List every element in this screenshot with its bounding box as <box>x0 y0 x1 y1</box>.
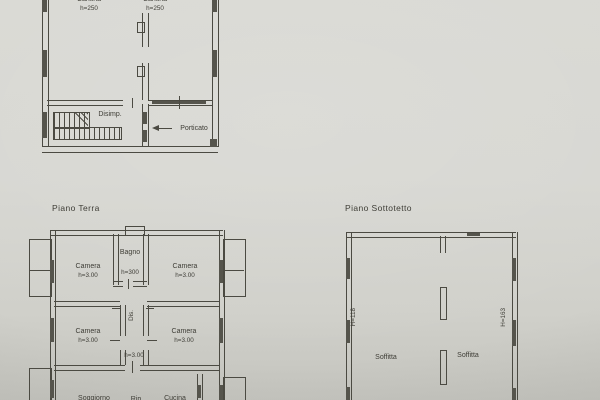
room-label-cantina-right: Cantina h=250 <box>134 0 176 13</box>
door-jamb <box>197 385 201 398</box>
corner-pillar <box>210 139 217 147</box>
window-marker <box>50 260 54 283</box>
window-marker <box>467 233 480 236</box>
door-tick <box>147 340 157 341</box>
window-marker <box>512 320 516 346</box>
room-label-porticato: Porticato <box>176 124 212 133</box>
room-name: Camera <box>68 262 108 271</box>
balcony-tick <box>223 270 244 271</box>
room-label-camera: Camera h=3.00 <box>164 327 204 345</box>
staircase-lower-flight <box>53 127 122 140</box>
room-label-soffitta: Soffitta <box>368 353 404 362</box>
wall-stub <box>440 236 446 253</box>
roof-opening <box>440 287 447 320</box>
room-label-disimp: Disimp. <box>93 110 127 119</box>
door-tick <box>128 279 129 289</box>
room-name: Camera <box>164 327 204 336</box>
room-label-camera: Camera h=3.00 <box>165 262 205 280</box>
wall <box>133 281 147 287</box>
room-label-camera: Camera h=3.00 <box>68 262 108 280</box>
entrance-arrow-line <box>158 128 172 129</box>
balcony <box>29 368 52 400</box>
wall <box>346 232 516 238</box>
window-tick <box>179 96 180 109</box>
chimney-notch <box>125 226 145 236</box>
window-marker <box>512 258 516 281</box>
window-marker <box>50 380 54 398</box>
room-label-soggiorno: Soggiorno <box>72 394 116 400</box>
door-tick <box>112 308 120 309</box>
corridor-height-label: h=3.00 <box>122 351 146 360</box>
balcony-tick <box>29 270 50 271</box>
floor-plan-photo: Cantina h=250 Cantina h=250 Disimp. Port… <box>0 0 600 400</box>
plan-title-piano-terra: Piano Terra <box>52 203 100 213</box>
wall <box>42 146 218 153</box>
balcony <box>29 239 52 297</box>
height-label-left: H=118 <box>350 308 357 326</box>
window-marker <box>212 50 217 77</box>
door-tick <box>132 361 133 373</box>
room-label-cucina: Cucina <box>158 394 192 400</box>
wall <box>54 365 125 371</box>
door-tick <box>110 340 120 341</box>
window-marker <box>219 260 223 283</box>
roof-opening <box>440 350 447 385</box>
room-height: h=3.00 <box>165 271 205 280</box>
wall <box>54 301 120 307</box>
window-marker <box>219 385 223 400</box>
window-marker <box>219 318 223 343</box>
wall <box>120 305 126 336</box>
wall <box>47 100 123 106</box>
window-marker <box>212 0 217 12</box>
room-height: h=3.00 <box>164 336 204 345</box>
wall <box>147 301 219 307</box>
wall <box>113 281 123 287</box>
window-marker <box>512 388 516 400</box>
room-height: h=3.00 <box>68 271 108 280</box>
balcony <box>223 239 246 297</box>
room-label-rip: Rip. <box>130 395 144 400</box>
window-marker <box>42 112 47 138</box>
chimney-notch <box>137 22 145 33</box>
wall <box>113 234 119 285</box>
room-height: h=3.00 <box>68 336 108 345</box>
room-height: h=250 <box>134 4 176 13</box>
wall <box>140 365 219 371</box>
wall <box>143 305 149 336</box>
door-jamb <box>142 130 147 142</box>
wall <box>143 234 149 285</box>
window-marker <box>50 318 54 342</box>
room-label-soffitta: Soffitta <box>450 351 486 360</box>
door-jamb <box>142 112 147 124</box>
balcony <box>223 377 246 400</box>
chimney-notch <box>137 66 145 77</box>
room-label-camera: Camera h=3.00 <box>68 327 108 345</box>
window-marker <box>346 387 350 400</box>
window-marker <box>42 0 47 12</box>
room-label-dis: Dis. <box>128 310 135 321</box>
room-height: h=300 <box>115 268 145 277</box>
height-label-right: H=163 <box>500 308 507 327</box>
room-name: Camera <box>165 262 205 271</box>
plan-title-piano-sottotetto: Piano Sottotetto <box>345 203 412 213</box>
room-height: h=250 <box>68 4 110 13</box>
room-label-bagno: Bagno <box>115 248 145 257</box>
window-marker <box>42 50 47 77</box>
window-marker <box>346 258 350 279</box>
door-tick <box>132 98 133 108</box>
room-name: Camera <box>68 327 108 336</box>
room-label-cantina-left: Cantina h=250 <box>68 0 110 13</box>
